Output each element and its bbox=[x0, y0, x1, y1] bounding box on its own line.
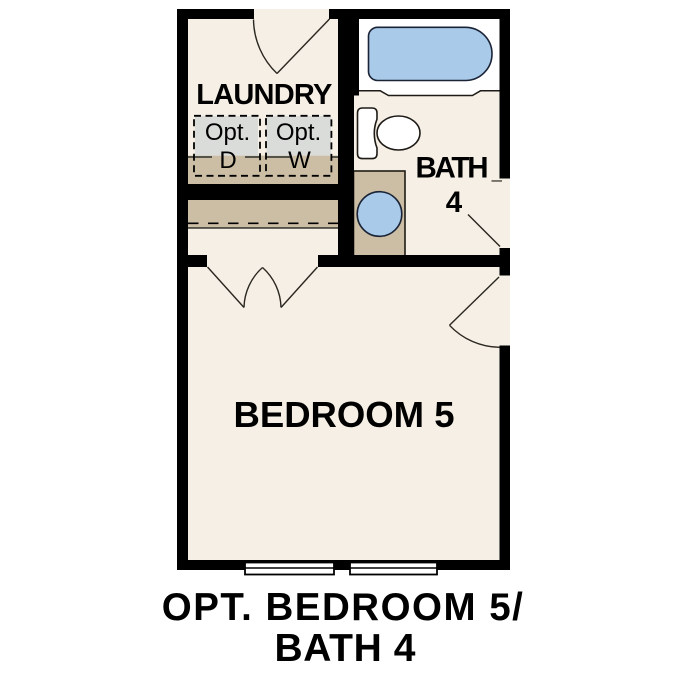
svg-text:Opt.: Opt. bbox=[276, 119, 321, 146]
svg-text:OPT. BEDROOM 5/: OPT. BEDROOM 5/ bbox=[162, 586, 523, 629]
svg-text:4: 4 bbox=[446, 186, 463, 219]
svg-text:D: D bbox=[219, 147, 236, 174]
svg-text:LAUNDRY: LAUNDRY bbox=[196, 79, 332, 111]
svg-text:BEDROOM 5: BEDROOM 5 bbox=[234, 394, 455, 435]
svg-text:BATH: BATH bbox=[416, 152, 489, 185]
svg-text:Opt.: Opt. bbox=[205, 119, 250, 146]
svg-text:BATH 4: BATH 4 bbox=[275, 627, 416, 670]
svg-text:W: W bbox=[288, 147, 311, 174]
